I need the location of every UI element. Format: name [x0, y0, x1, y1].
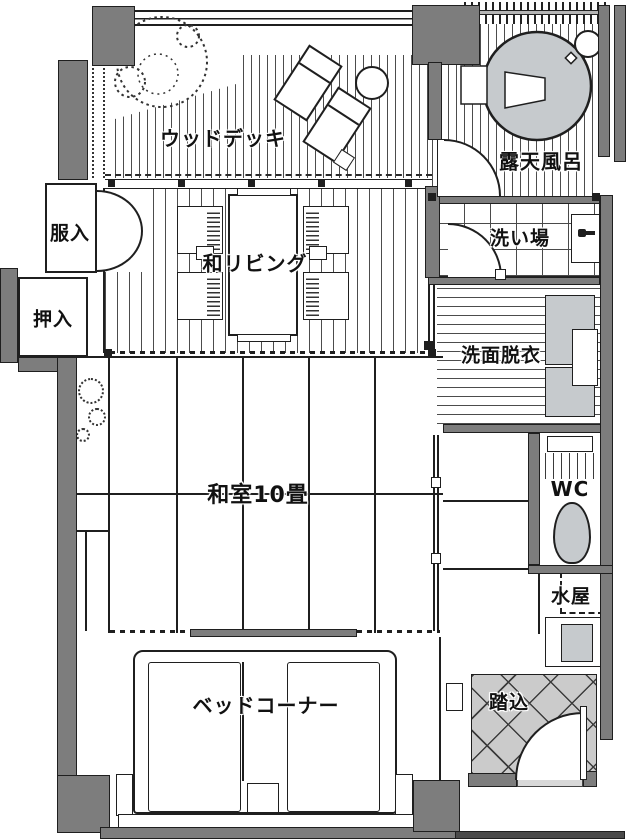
- chair-cushion: [306, 210, 319, 250]
- mizuya-sink-basin: [561, 624, 593, 662]
- label-tatami-room: 和室10畳: [207, 477, 309, 509]
- bed-divider-line: [242, 662, 244, 781]
- corridor-track-b: [437, 435, 439, 631]
- wall-washing-washroom-divider: [428, 277, 600, 285]
- label-mizuya: 水屋: [551, 582, 591, 609]
- wall-bottom-right-block: [413, 780, 460, 832]
- tatami-line-v1: [176, 358, 178, 633]
- chair-cushion: [207, 276, 220, 316]
- wall-entrance-bottom-left: [468, 773, 517, 787]
- bed-mattress: [287, 662, 380, 812]
- wall-post: [592, 193, 600, 201]
- wall-left-upper: [58, 60, 88, 180]
- living-right-track-b: [433, 278, 435, 350]
- label-washing-area: 洗い場: [490, 224, 550, 251]
- living-right-track-a: [428, 278, 430, 350]
- corridor-board-line-1: [443, 500, 528, 502]
- entrance-door-leaf: [580, 706, 587, 780]
- chair-cushion: [306, 276, 319, 316]
- sliding-door-pull: [431, 477, 441, 488]
- wall-left-mid: [0, 268, 18, 363]
- label-wc: WC: [551, 477, 590, 501]
- wall-left-horizontal: [18, 357, 60, 372]
- tatami-top-line: [77, 356, 443, 358]
- label-clothes-closet: 服入: [50, 219, 90, 246]
- shower-counter: [571, 214, 600, 263]
- tokonoma-line-v: [85, 532, 87, 631]
- hall-shelf: [446, 683, 463, 711]
- track-post: [318, 180, 325, 187]
- corridor-track-a: [433, 435, 435, 631]
- wall-bath-right-a: [598, 5, 610, 157]
- left-nightstand: [116, 774, 133, 816]
- tokonoma-line-h: [77, 530, 108, 532]
- center-nightstand: [247, 783, 279, 813]
- label-entrance-step: 踏込: [489, 688, 529, 715]
- wall-wc-bottom: [528, 565, 613, 574]
- bed-mattress: [148, 662, 241, 812]
- tatami-bottom-dotted-left: [110, 630, 190, 633]
- shoji-threshold-dotted: [110, 351, 430, 354]
- ikebana-plant: [78, 378, 104, 404]
- washing-door-handle: [495, 269, 506, 280]
- tatami-line-v4: [374, 358, 376, 633]
- living-table-end: [237, 188, 291, 196]
- wall-bath-right-b: [614, 5, 626, 162]
- label-bed-corner: ベッドコーナー: [193, 690, 340, 719]
- label-washroom-dressing: 洗面脱衣: [461, 341, 541, 368]
- living-table-end: [237, 334, 291, 342]
- wall-bottom-left-block: [57, 775, 110, 833]
- wall-top-left-block: [92, 6, 135, 66]
- headboard: [118, 814, 414, 828]
- wall-post: [428, 193, 436, 201]
- label-japanese-living: 和リビング: [203, 248, 308, 277]
- washroom-tall-unit: [572, 329, 598, 386]
- track-post: [405, 180, 412, 187]
- ikebana-plant-2: [88, 408, 106, 426]
- track-post: [108, 180, 115, 187]
- shower-faucet-icon: [578, 229, 586, 237]
- mizuya-left-line: [538, 574, 540, 634]
- floor-plan-canvas: ウッドデッキ 露天風呂 服入 押入 和リビング 洗い場 洗面脱衣 和室10畳 W…: [0, 0, 640, 839]
- track-post: [248, 180, 255, 187]
- label-wood-deck: ウッドデッキ: [160, 123, 286, 152]
- corridor-board-line-2: [443, 568, 528, 570]
- shower-faucet-icon: [586, 231, 595, 235]
- toilet-tank: [547, 436, 593, 452]
- tatami-bottom-dotted-right: [357, 630, 440, 633]
- chair-cushion: [207, 210, 220, 250]
- ikebana-plant-3: [76, 428, 90, 442]
- wall-left-lower: [57, 357, 77, 777]
- lounge-chair-backrest: [328, 104, 359, 125]
- living-chair: [303, 272, 349, 320]
- living-side-table: [309, 246, 327, 260]
- bath-fence-upper: [464, 2, 610, 10]
- tokonoma-right-line: [108, 358, 110, 633]
- deck-round-table: [355, 66, 389, 100]
- wall-bath-washing-divider: [428, 196, 600, 204]
- sliding-door-pull: [431, 553, 441, 564]
- toilet-bowl: [553, 502, 591, 564]
- wc-floor-stripes: [545, 453, 597, 479]
- track-post: [178, 180, 185, 187]
- label-futon-closet: 押入: [33, 305, 73, 332]
- wall-wc-left: [528, 433, 540, 565]
- wall-washroom-bottom: [443, 424, 613, 433]
- deck-living-dashed-line: [105, 174, 432, 176]
- lounge-chair-backrest: [299, 62, 330, 83]
- wall-right-main: [600, 195, 613, 740]
- porch-dark-strip: [455, 831, 625, 839]
- right-nightstand: [395, 774, 413, 816]
- wall-tatami-bottom-lintel: [190, 629, 357, 637]
- deck-left-dotted-wall: [92, 64, 94, 178]
- wall-bottom-strip: [100, 827, 460, 839]
- living-chair: [177, 272, 223, 320]
- wall-top-right-block: [412, 5, 480, 65]
- wall-deck-bath-divider: [428, 62, 442, 140]
- label-open-air-bath: 露天風呂: [499, 146, 583, 175]
